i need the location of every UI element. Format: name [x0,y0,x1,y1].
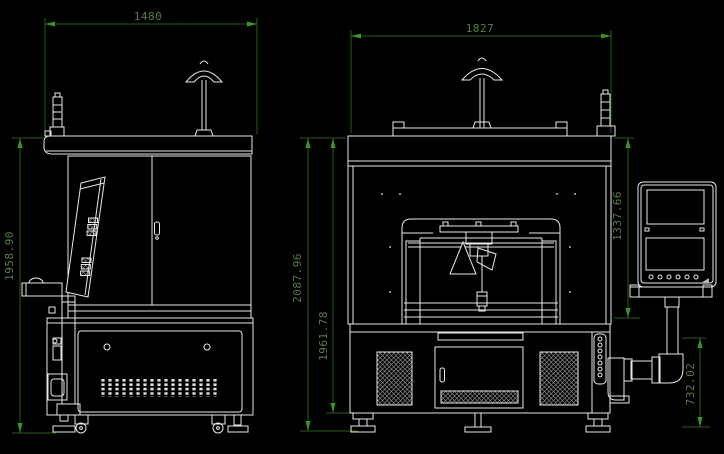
mesh-panel-left [377,352,412,405]
dim-front-body-height-label: 1961.78 [317,311,330,361]
cad-drawing: 1480 1958.90 [0,0,724,454]
dim-front-upper-height-label: 1337.66 [611,191,624,241]
dim-front-overall-height-label: 2087.96 [291,253,304,303]
mesh-panel-right [540,352,578,405]
dim-front-arm-height-label: 732.02 [684,363,697,406]
dim-side-height-label: 1958.90 [3,231,16,281]
cad-canvas: 1480 1958.90 [0,0,724,454]
dim-side-width-label: 1480 [134,10,163,23]
dim-front-width-label: 1827 [466,22,495,35]
